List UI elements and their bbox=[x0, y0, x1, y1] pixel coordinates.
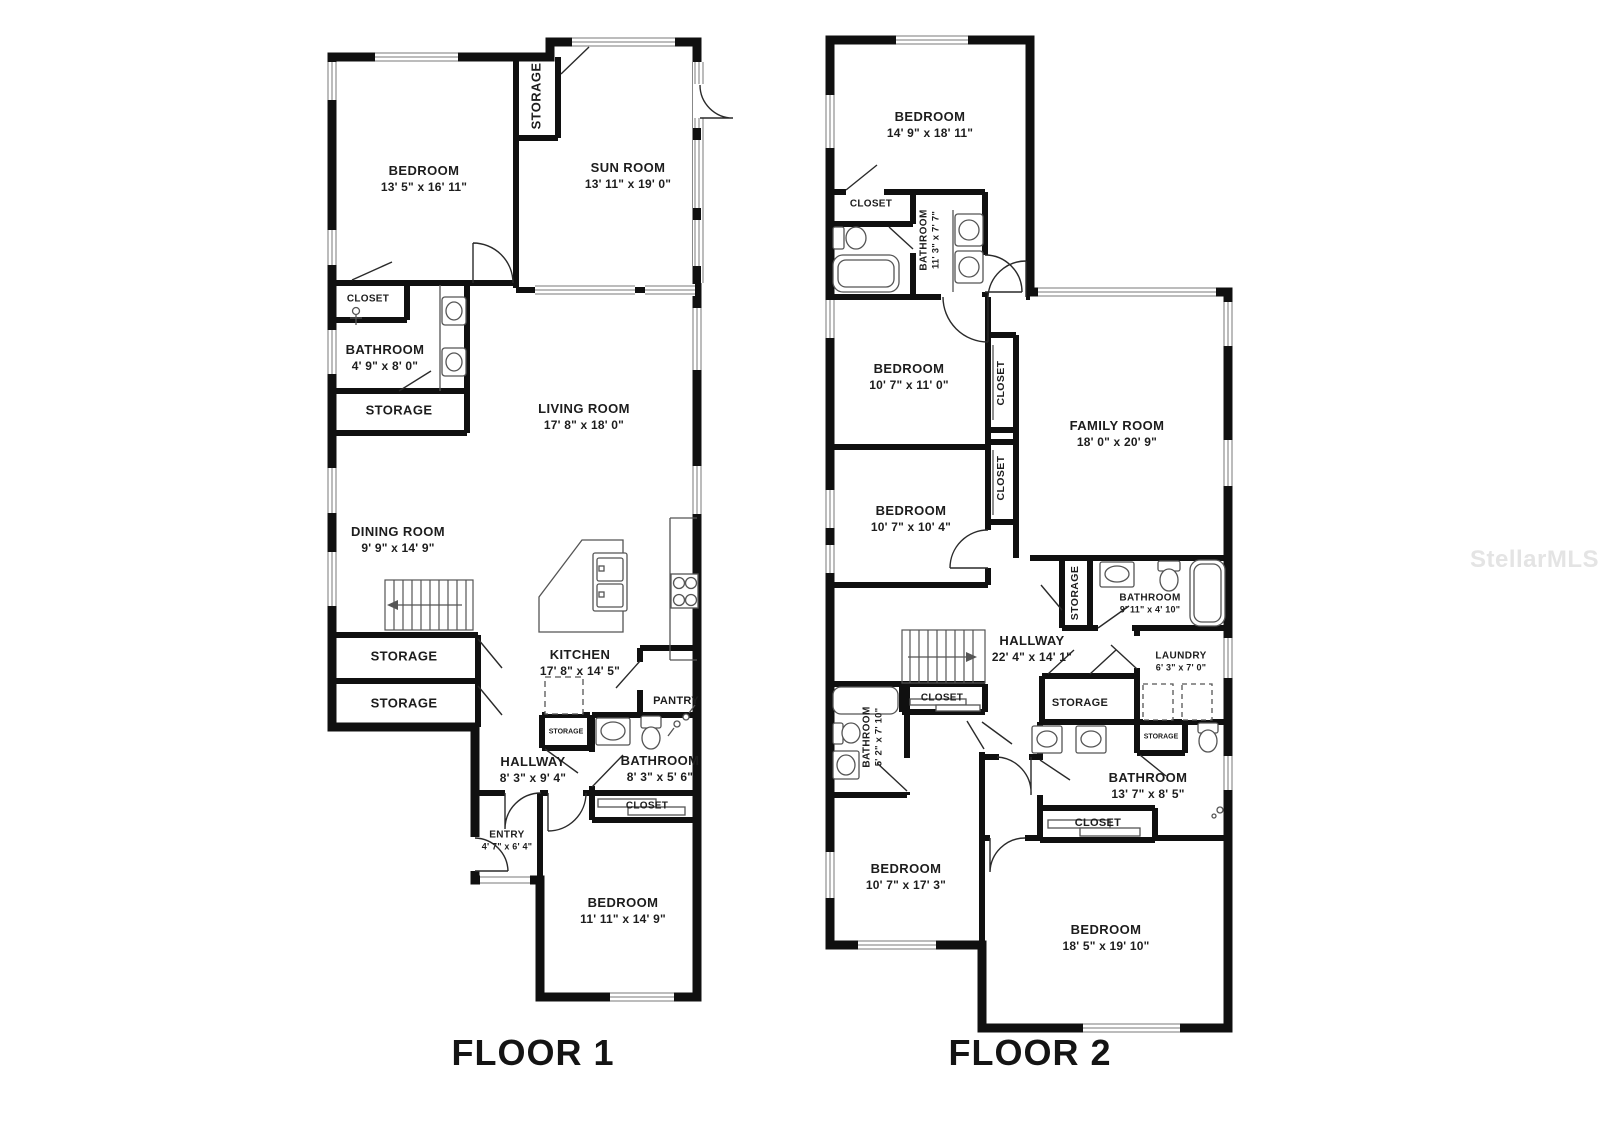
f2-bedroom-top-label: BEDROOM 14' 9" x 18' 11" bbox=[887, 109, 973, 141]
f2-bathroom-52-label: BATHROOM 5' 2" x 7' 10" bbox=[860, 706, 885, 767]
f2-bedroom-5-label: BEDROOM 18' 5" x 19' 10" bbox=[1062, 922, 1149, 954]
f2-hallway-label: HALLWAY 22' 4" x 14' 1" bbox=[992, 633, 1072, 665]
f1-bathroom-bottom-label: BATHROOM 8' 3" x 5' 6" bbox=[621, 753, 700, 785]
f2-storage-tiny-label: STORAGE bbox=[1144, 732, 1179, 741]
f2-closet-mid-label: CLOSET bbox=[921, 692, 963, 705]
f2-closet-vert-1-label: CLOSET bbox=[995, 361, 1009, 406]
f1-dining-room-label: DINING ROOM 9' 9" x 14' 9" bbox=[351, 524, 445, 556]
f2-closet-vert-2-label: CLOSET bbox=[995, 456, 1009, 501]
floorplan-page: BEDROOM 13' 5" x 16' 11" STORAGE SUN ROO… bbox=[0, 0, 1600, 1134]
floor1-title: FLOOR 1 bbox=[451, 1032, 614, 1074]
f2-bedroom-3-label: BEDROOM 10' 7" x 10' 4" bbox=[871, 503, 951, 535]
f1-sun-room-label: SUN ROOM 13' 11" x 19' 0" bbox=[585, 160, 671, 192]
f1-entry-label: ENTRY 4' 7" x 6' 4" bbox=[482, 829, 532, 854]
f1-storage-b-label: STORAGE bbox=[371, 696, 438, 713]
f1-pantry-label: PANTRY bbox=[653, 694, 699, 708]
f2-closet-bottom-label: CLOSET bbox=[1075, 816, 1121, 830]
f2-laundry-label: LAUNDRY 6' 3" x 7' 0" bbox=[1155, 650, 1206, 675]
f1-storage-mid-label: STORAGE bbox=[366, 403, 433, 420]
floor2-title: FLOOR 2 bbox=[948, 1032, 1111, 1074]
f2-storage-h-label: STORAGE bbox=[1052, 696, 1108, 710]
f2-bedroom-4-label: BEDROOM 10' 7" x 17' 3" bbox=[866, 861, 946, 893]
f2-storage-vert-label: STORAGE bbox=[1069, 566, 1083, 621]
f2-bathroom-137-label: BATHROOM 13' 7" x 8' 5" bbox=[1109, 770, 1188, 802]
f1-bedroom-tl-label: BEDROOM 13' 5" x 16' 11" bbox=[381, 163, 467, 195]
f2-bathroom-911-label: BATHROOM 9' 11" x 4' 10" bbox=[1119, 592, 1180, 617]
f1-living-room-label: LIVING ROOM 17' 8" x 18' 0" bbox=[538, 401, 630, 433]
f2-family-room-label: FAMILY ROOM 18' 0" x 20' 9" bbox=[1070, 418, 1165, 450]
floorplan-canvas bbox=[0, 0, 1600, 1134]
watermark: StellarMLS bbox=[1470, 546, 1599, 574]
f1-kitchen-label: KITCHEN 17' 8" x 14' 5" bbox=[540, 647, 620, 679]
f1-closet-bottom-label: CLOSET bbox=[626, 800, 668, 813]
f1-storage-tiny-label: STORAGE bbox=[549, 727, 584, 736]
f1-storage-top-label: STORAGE bbox=[529, 63, 546, 130]
f1-storage-a-label: STORAGE bbox=[371, 649, 438, 666]
f1-bathroom-top-label: BATHROOM 4' 9" x 8' 0" bbox=[346, 342, 425, 374]
f2-closet-top-label: CLOSET bbox=[850, 198, 892, 211]
f1-hallway-label: HALLWAY 8' 3" x 9' 4" bbox=[500, 754, 566, 786]
f2-bedroom-2-label: BEDROOM 10' 7" x 11' 0" bbox=[869, 361, 948, 393]
f2-bathroom-top-label: BATHROOM 11' 3" x 7' 7" bbox=[917, 209, 942, 270]
f1-bedroom-bottom-label: BEDROOM 11' 11" x 14' 9" bbox=[580, 895, 666, 927]
f1-closet-tl-label: CLOSET bbox=[347, 293, 389, 306]
